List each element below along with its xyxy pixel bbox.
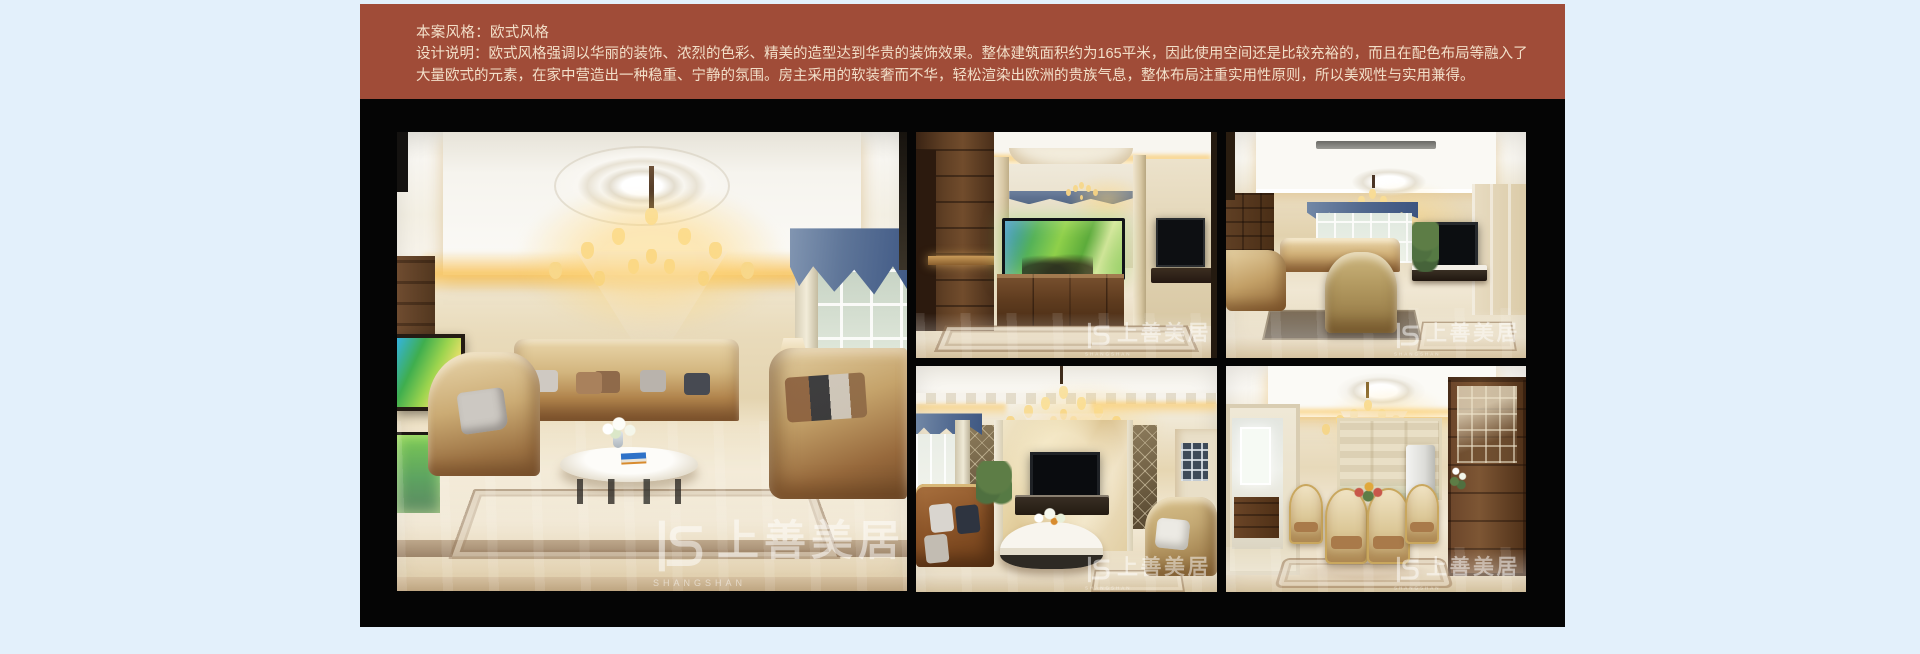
flowers — [597, 416, 641, 442]
photo-dining-room[interactable]: 上善美居 SHANGSHAN MEIJU — [1226, 366, 1526, 592]
marble-column — [1133, 155, 1147, 327]
marble-wall — [1472, 184, 1526, 315]
lit-counter — [928, 256, 994, 265]
sofa-back — [514, 339, 738, 422]
armchair-left — [428, 352, 540, 476]
ac-vent — [1316, 141, 1436, 149]
floor-inlay-border — [1417, 322, 1517, 351]
photo-living-room-feature-wall[interactable]: 上善美居 SHANGSHAN MEIJU — [916, 366, 1217, 592]
photo-edge-shadow — [1211, 132, 1217, 358]
armchair-front — [1325, 252, 1397, 333]
photo-foyer-aquarium[interactable]: 上善美居 SHANGSHAN MEIJU — [916, 132, 1217, 358]
watermark-latin-text: SHANGSHAN MEIJU — [1394, 351, 1441, 358]
photo-living-room-main[interactable]: 上善美居 SHANGSHAN MEIJU — [397, 132, 907, 591]
photo-gallery: 上善美居 SHANGSHAN MEIJU — [360, 99, 1565, 627]
potted-plant — [1412, 222, 1439, 272]
kitchen-window — [1240, 427, 1271, 485]
tv-screen — [1030, 452, 1099, 501]
design-summary-panel: 本案风格：欧式风格 设计说明：欧式风格强调以华丽的装饰、浓烈的色彩、精美的造型达… — [360, 4, 1565, 99]
aquarium — [1002, 218, 1125, 281]
flowers — [1445, 461, 1472, 495]
flowers — [1030, 506, 1074, 528]
photo-edge-shadow — [1226, 132, 1235, 200]
dining-chair — [1405, 484, 1439, 545]
sofa-right — [769, 348, 907, 499]
sofa-left — [1226, 250, 1286, 311]
back-window — [1181, 443, 1208, 481]
tv-stand — [1151, 268, 1214, 284]
floor-border-band — [397, 577, 907, 591]
potted-plant — [976, 461, 1012, 520]
armchair-right — [1145, 497, 1217, 576]
dining-chair — [1289, 484, 1323, 545]
table-centerpiece — [1349, 477, 1389, 505]
photo-edge-shadow — [899, 132, 907, 270]
dark-doorway — [916, 150, 936, 331]
case-style-title: 本案风格：欧式风格 — [416, 22, 549, 44]
coffee-table — [1000, 522, 1102, 569]
floor-inlay-border — [934, 325, 1199, 351]
books — [621, 452, 646, 459]
chandelier-glow — [515, 196, 789, 336]
chandelier-lights — [1079, 182, 1084, 189]
tv-screen — [1156, 218, 1205, 267]
photo-edge-shadow — [397, 132, 408, 192]
kitchen-cabinets — [1234, 497, 1279, 538]
photo-living-room-tv[interactable]: 上善美居 SHANGSHAN MEIJU — [1226, 132, 1526, 358]
coffee-table — [560, 435, 698, 504]
aquarium-cabinet — [997, 274, 1123, 326]
design-description: 设计说明：欧式风格强调以华丽的装饰、浓烈的色彩、精美的造型达到华贵的装饰效果。整… — [416, 44, 1534, 87]
watermark-latin-text: SHANGSHAN MEIJU — [1085, 351, 1132, 358]
cabinet-glass-doors — [1457, 386, 1517, 463]
